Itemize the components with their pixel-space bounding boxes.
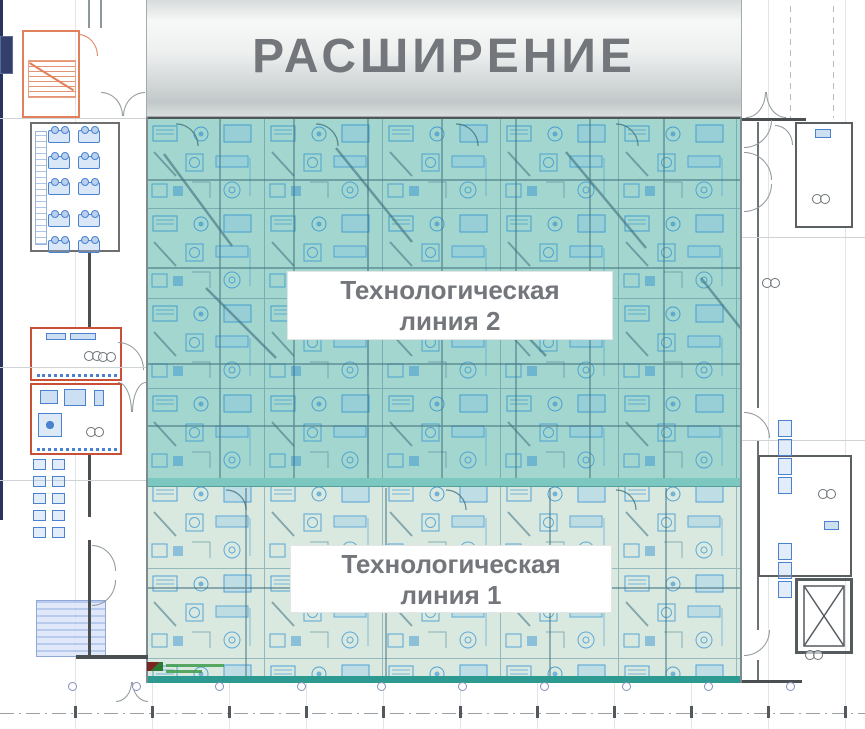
ladder-step xyxy=(778,458,792,475)
desk-with-chairs xyxy=(48,214,70,227)
zone-divider-wall xyxy=(146,478,742,487)
elevator-shaft xyxy=(795,578,853,654)
wall-segment xyxy=(88,455,91,517)
table-glyph xyxy=(812,194,830,205)
table-glyph xyxy=(818,489,836,500)
label-tech-line-2-text-top: Технологическая xyxy=(288,275,612,306)
door-arc xyxy=(744,412,770,438)
ladder-step xyxy=(778,439,792,456)
door-arc xyxy=(116,682,132,702)
grid-line xyxy=(0,367,146,368)
column-marker-circle xyxy=(68,682,77,691)
column-marker-circle xyxy=(458,682,467,691)
column-marker-circle xyxy=(297,682,306,691)
machine-unit xyxy=(38,413,62,437)
hall-right-wall xyxy=(740,117,742,683)
locker-unit xyxy=(52,493,65,504)
floor-plan-page: Технологическая линия 2 Технологическая … xyxy=(0,0,865,729)
column-tick xyxy=(305,706,308,718)
grid-dashdot-line xyxy=(0,713,865,714)
door-arc xyxy=(92,545,116,571)
door-arc xyxy=(775,125,793,145)
column-tick xyxy=(382,706,385,718)
locker-unit xyxy=(33,493,46,504)
label-tech-line-1-text-top: Технологическая xyxy=(291,549,611,580)
storage-rack-area xyxy=(36,600,106,657)
hall-left-wall xyxy=(146,117,148,683)
expansion-banner-title: РАСШИРЕНИЕ xyxy=(147,0,741,114)
column-tick xyxy=(690,706,693,718)
wall-segment xyxy=(76,655,148,659)
left-edge-marker xyxy=(0,36,13,74)
production-hall: Технологическая линия 2 Технологическая … xyxy=(146,117,742,683)
door-arc xyxy=(92,580,116,606)
door-arc xyxy=(766,92,786,118)
door-arc xyxy=(746,92,766,118)
desk-with-chairs xyxy=(48,130,70,143)
locker-unit xyxy=(33,459,46,470)
equipment-shelf xyxy=(70,333,96,340)
fan-glyph xyxy=(805,650,823,661)
desk-with-chairs xyxy=(48,240,70,253)
label-tech-line-2-text-bottom: линия 2 xyxy=(288,306,612,337)
column-tick xyxy=(536,706,539,718)
office-cabinets xyxy=(35,131,47,245)
ladder-step xyxy=(778,581,792,598)
grid-line xyxy=(742,237,865,238)
label-tech-line-2: Технологическая линия 2 xyxy=(287,271,613,340)
column-marker-circle xyxy=(540,682,549,691)
utility-room-top-right xyxy=(795,122,853,228)
column-marker-circle xyxy=(704,682,713,691)
equipment-unit xyxy=(815,129,831,138)
grid-line xyxy=(0,118,146,119)
column-marker-circle xyxy=(786,682,795,691)
door-arc xyxy=(132,382,146,412)
stairwell xyxy=(22,30,80,118)
desk-with-chairs xyxy=(78,182,100,195)
column-tick xyxy=(151,706,154,718)
desk-with-chairs xyxy=(78,214,100,227)
desk-with-chairs xyxy=(48,156,70,169)
grid-dashed-line xyxy=(833,6,834,118)
desk-with-chairs xyxy=(48,182,70,195)
locker-unit xyxy=(52,527,65,538)
ladder-step xyxy=(778,477,792,494)
fan-glyph xyxy=(98,352,116,363)
label-tech-line-1: Технологическая линия 1 xyxy=(290,545,612,613)
column-tick xyxy=(228,706,231,718)
locker-unit xyxy=(52,510,65,521)
locker-unit xyxy=(52,459,65,470)
equipment-unit xyxy=(824,521,839,530)
ladder-step xyxy=(778,543,792,560)
door-arc xyxy=(118,382,132,412)
column-tick xyxy=(74,706,77,718)
ladder-step xyxy=(778,420,792,437)
corridor-wall xyxy=(757,660,759,680)
wall-segment xyxy=(100,0,102,28)
locker-unit xyxy=(33,476,46,487)
left-edge-line xyxy=(0,0,3,520)
locker-unit xyxy=(52,476,65,487)
column-marker-circle xyxy=(215,682,224,691)
legend-flag xyxy=(147,662,163,671)
column-tick xyxy=(844,706,847,718)
equipment-room-2 xyxy=(30,383,122,455)
door-arc xyxy=(123,92,145,116)
column-tick xyxy=(459,706,462,718)
locker-unit xyxy=(33,527,46,538)
equipment-unit xyxy=(64,389,86,406)
label-tech-line-1-text-bottom: линия 1 xyxy=(291,580,611,611)
desk-with-chairs xyxy=(78,240,100,253)
grid-line xyxy=(742,440,865,441)
equipment-unit xyxy=(94,390,104,406)
column-marker-circle xyxy=(132,682,141,691)
desk-with-chairs xyxy=(78,156,100,169)
stair-door-arc xyxy=(78,34,98,56)
hall-bottom-wall xyxy=(146,676,742,683)
door-arc xyxy=(744,630,770,656)
fan-glyph xyxy=(762,278,780,289)
hall-top-wall xyxy=(146,117,742,119)
door-arc xyxy=(101,92,123,116)
equipment-shelf xyxy=(46,333,66,340)
ladder-step xyxy=(778,562,792,579)
wall-segment xyxy=(88,540,91,658)
door-arc xyxy=(118,342,144,370)
column-marker-circle xyxy=(377,682,386,691)
column-tick xyxy=(613,706,616,718)
office-room xyxy=(30,122,120,252)
desk-with-chairs xyxy=(78,130,100,143)
table-glyph xyxy=(86,427,104,438)
chairs-row xyxy=(37,443,117,451)
locker-unit xyxy=(33,510,46,521)
grid-line xyxy=(0,480,146,481)
chairs-row xyxy=(37,369,117,377)
grid-dashed-line xyxy=(790,6,791,118)
utility-room-mid-right xyxy=(758,455,852,577)
legend-note xyxy=(166,670,202,673)
grid-line-vertical xyxy=(768,0,769,729)
legend-note xyxy=(166,664,224,667)
expansion-banner: РАСШИРЕНИЕ xyxy=(146,0,742,117)
wall-segment xyxy=(88,252,91,327)
wall-segment xyxy=(88,0,90,28)
equipment-unit xyxy=(40,390,58,404)
column-tick xyxy=(767,706,770,718)
column-marker-circle xyxy=(622,682,631,691)
